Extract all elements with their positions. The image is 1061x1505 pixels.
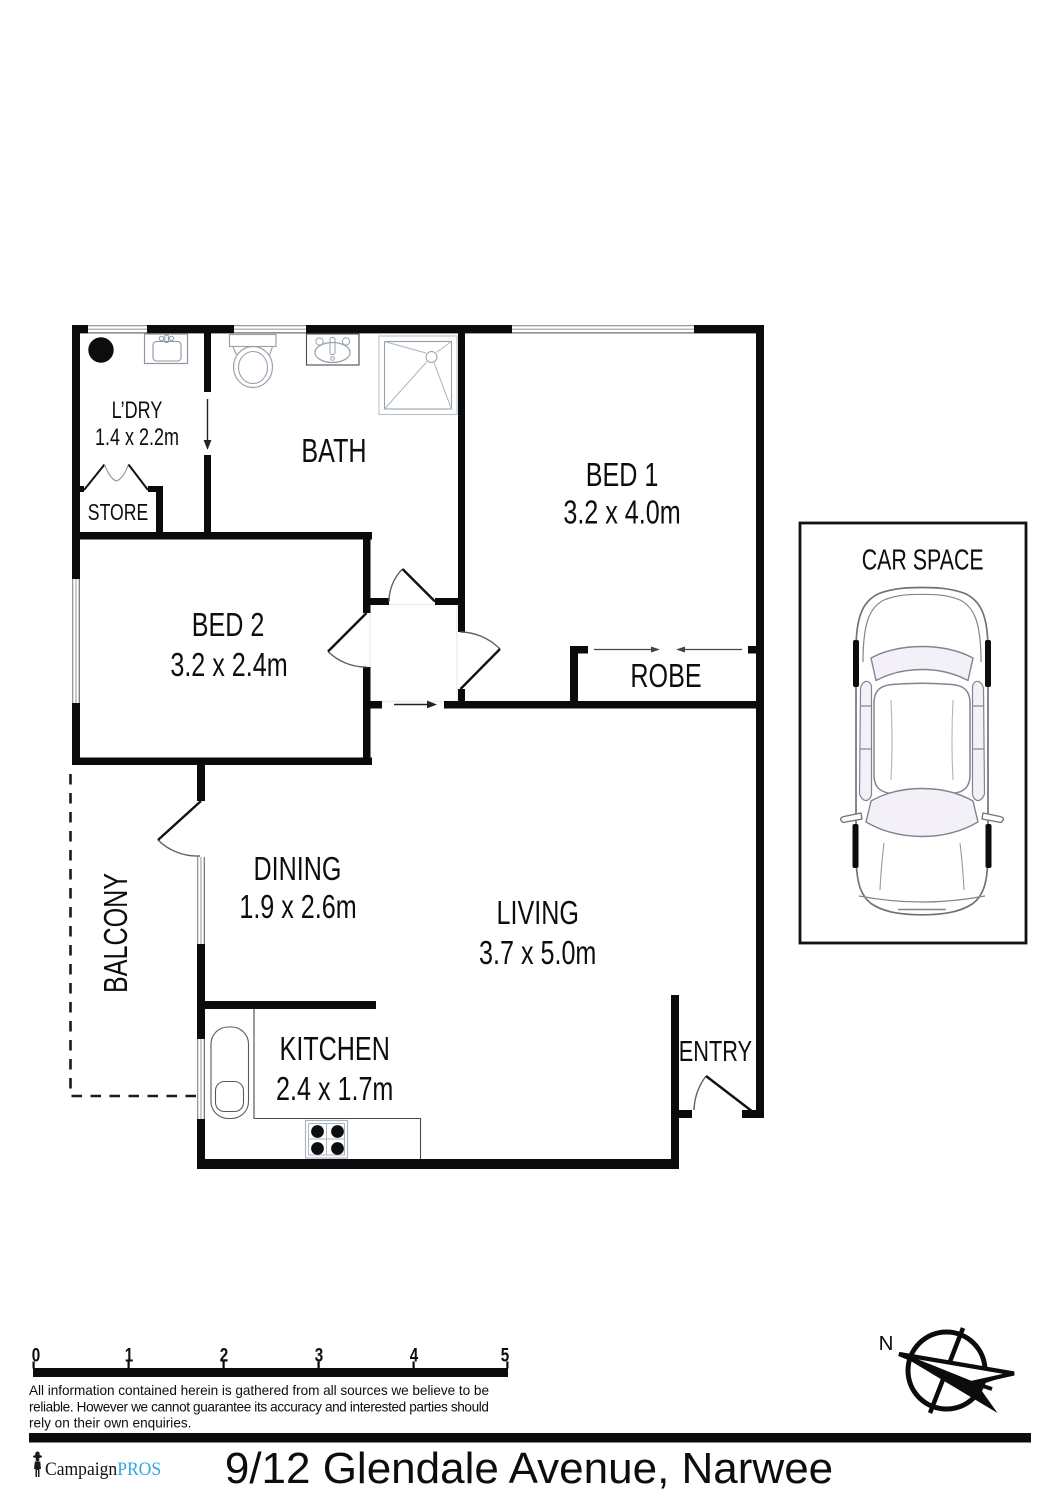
svg-text:rely on their own enquiries.: rely on their own enquiries.	[29, 1416, 191, 1431]
svg-text:DINING: DINING	[254, 851, 342, 888]
svg-text:9/12 Glendale Avenue, Narwee: 9/12 Glendale Avenue, Narwee	[225, 1444, 833, 1493]
svg-text:BED 1: BED 1	[586, 457, 659, 494]
svg-text:5: 5	[501, 1344, 510, 1366]
svg-text:3: 3	[315, 1344, 324, 1366]
svg-text:2.4 x 1.7m: 2.4 x 1.7m	[276, 1071, 393, 1108]
svg-text:KITCHEN: KITCHEN	[280, 1031, 390, 1068]
svg-text:ROBE: ROBE	[630, 658, 701, 695]
svg-text:4: 4	[410, 1344, 419, 1366]
svg-text:BED 2: BED 2	[192, 607, 265, 644]
svg-text:LIVING: LIVING	[497, 895, 579, 932]
svg-text:0: 0	[32, 1344, 40, 1366]
svg-text:N: N	[879, 1332, 894, 1355]
svg-text:2: 2	[220, 1344, 229, 1366]
svg-text:3.7 x 5.0m: 3.7 x 5.0m	[479, 935, 596, 972]
svg-text:STORE: STORE	[88, 500, 148, 526]
svg-text:CampaignPROS: CampaignPROS	[45, 1459, 161, 1480]
svg-text:BALCONY: BALCONY	[98, 873, 135, 993]
svg-text:CAR SPACE: CAR SPACE	[862, 545, 984, 577]
svg-text:L’DRY: L’DRY	[112, 398, 163, 424]
svg-text:1.9 x 2.6m: 1.9 x 2.6m	[239, 889, 356, 926]
svg-text:BATH: BATH	[301, 433, 366, 470]
svg-text:All information contained here: All information contained herein is gath…	[29, 1383, 489, 1398]
svg-text:reliable. However we cannot gu: reliable. However we cannot guarantee it…	[29, 1399, 489, 1414]
svg-text:1.4 x 2.2m: 1.4 x 2.2m	[95, 425, 179, 451]
svg-text:3.2 x 2.4m: 3.2 x 2.4m	[170, 647, 287, 684]
svg-text:3.2 x 4.0m: 3.2 x 4.0m	[563, 494, 680, 531]
svg-text:ENTRY: ENTRY	[679, 1036, 752, 1068]
svg-text:1: 1	[125, 1344, 134, 1366]
